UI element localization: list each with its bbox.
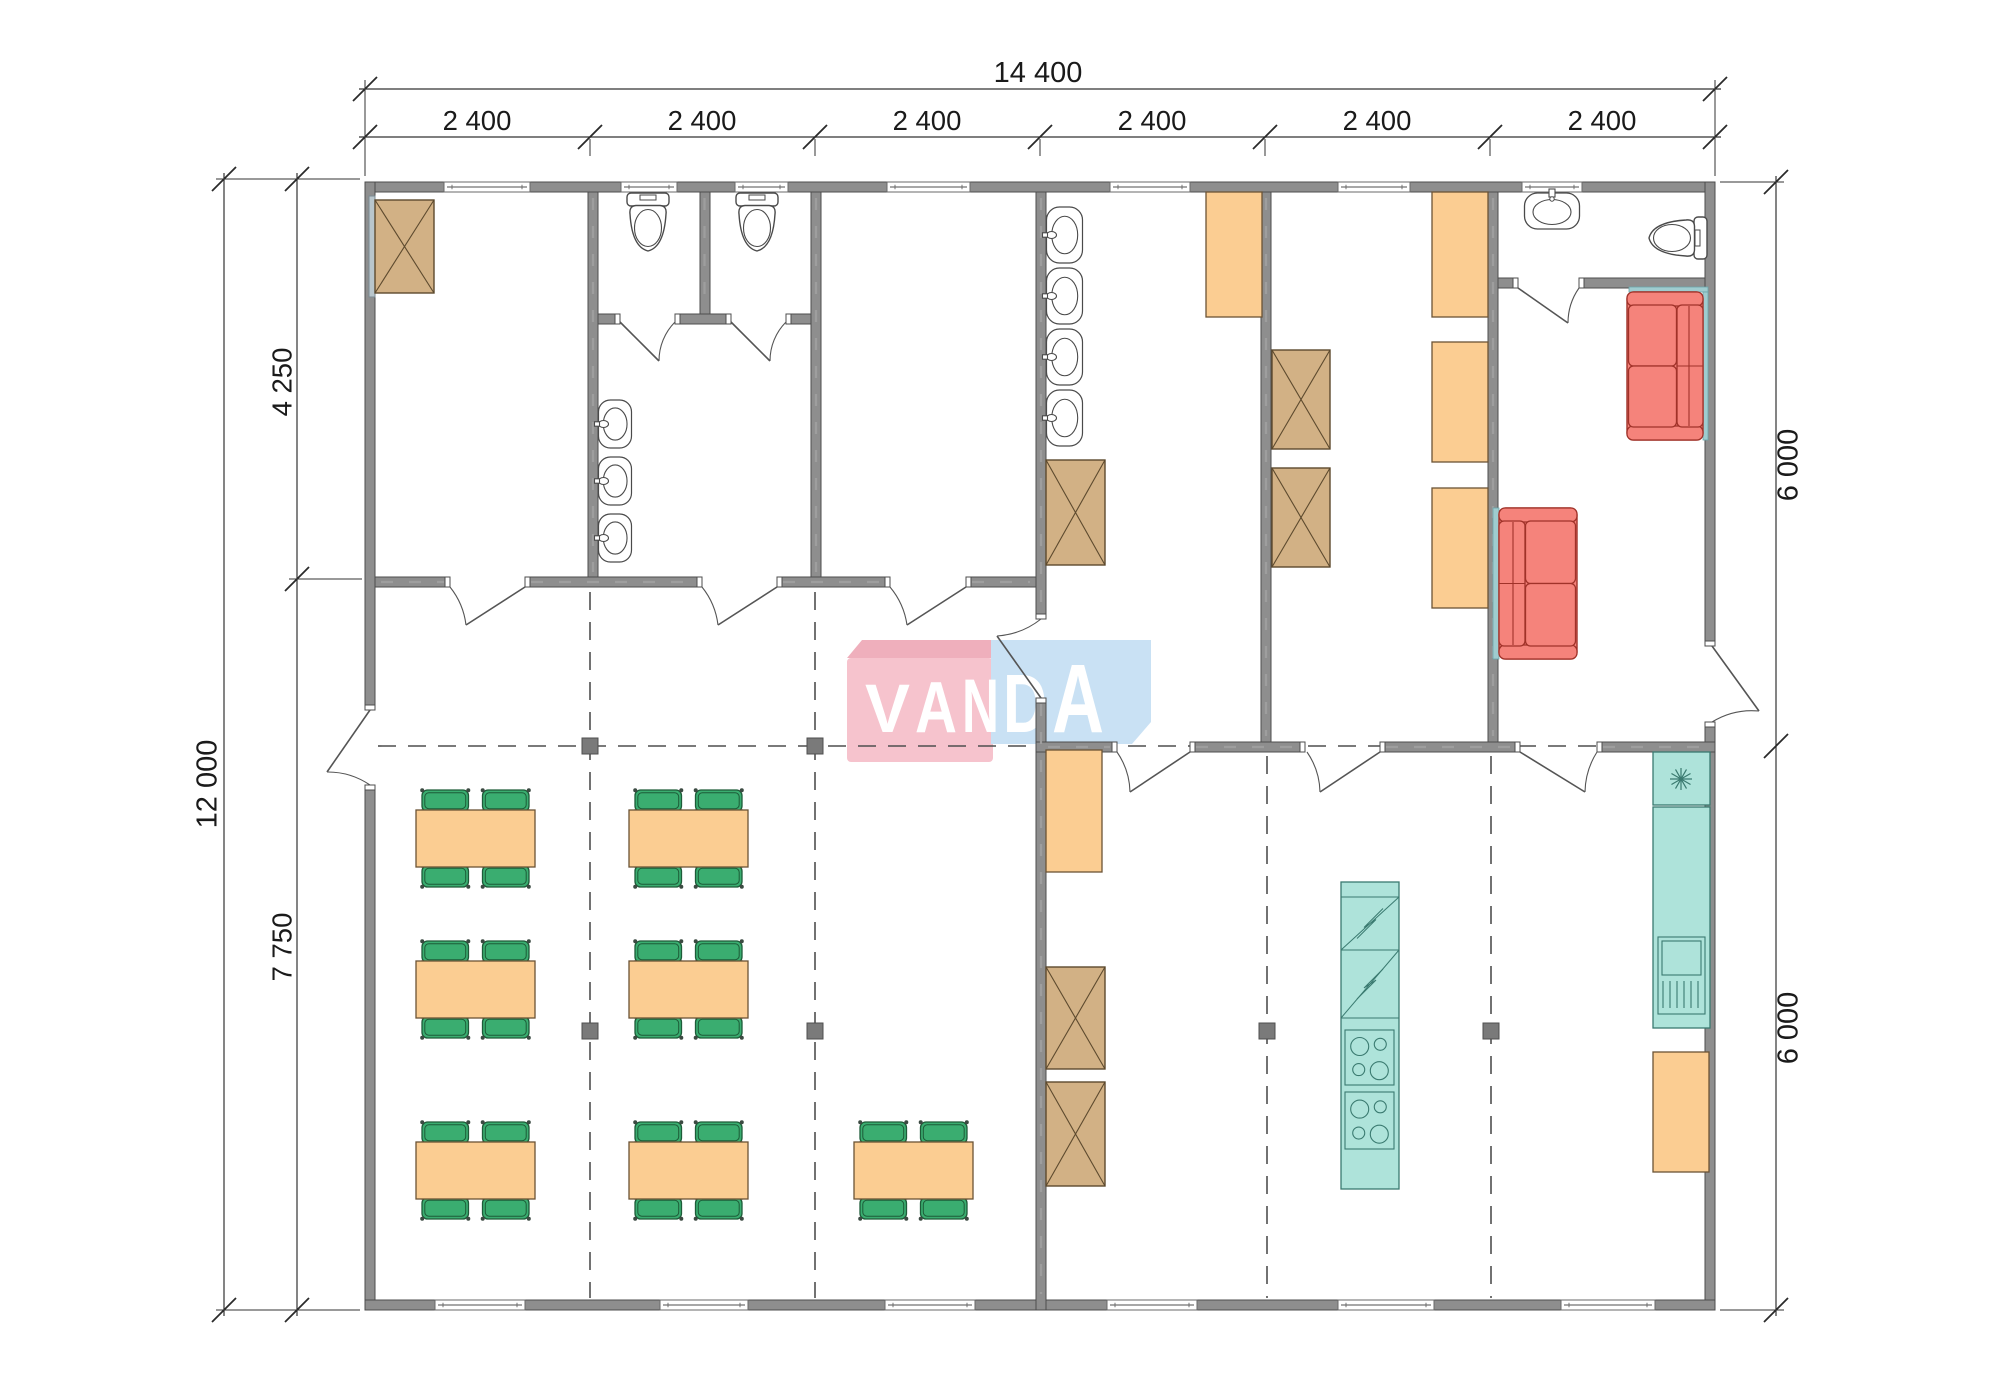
- svg-text:2 400: 2 400: [1343, 105, 1412, 136]
- svg-text:2 400: 2 400: [1568, 105, 1637, 136]
- svg-text:14 400: 14 400: [994, 57, 1083, 89]
- svg-text:6 000: 6 000: [1773, 992, 1805, 1065]
- svg-text:2 400: 2 400: [668, 105, 737, 136]
- svg-text:6 000: 6 000: [1773, 429, 1805, 502]
- svg-text:12 000: 12 000: [192, 740, 224, 829]
- svg-text:4 250: 4 250: [266, 348, 297, 417]
- svg-text:7 750: 7 750: [266, 913, 297, 982]
- svg-text:N: N: [962, 664, 999, 749]
- svg-text:A: A: [915, 668, 957, 748]
- svg-text:A: A: [1052, 644, 1104, 753]
- svg-text:2 400: 2 400: [443, 105, 512, 136]
- svg-text:2 400: 2 400: [1118, 105, 1187, 136]
- svg-text:2 400: 2 400: [893, 105, 962, 136]
- svg-text:V: V: [865, 670, 910, 747]
